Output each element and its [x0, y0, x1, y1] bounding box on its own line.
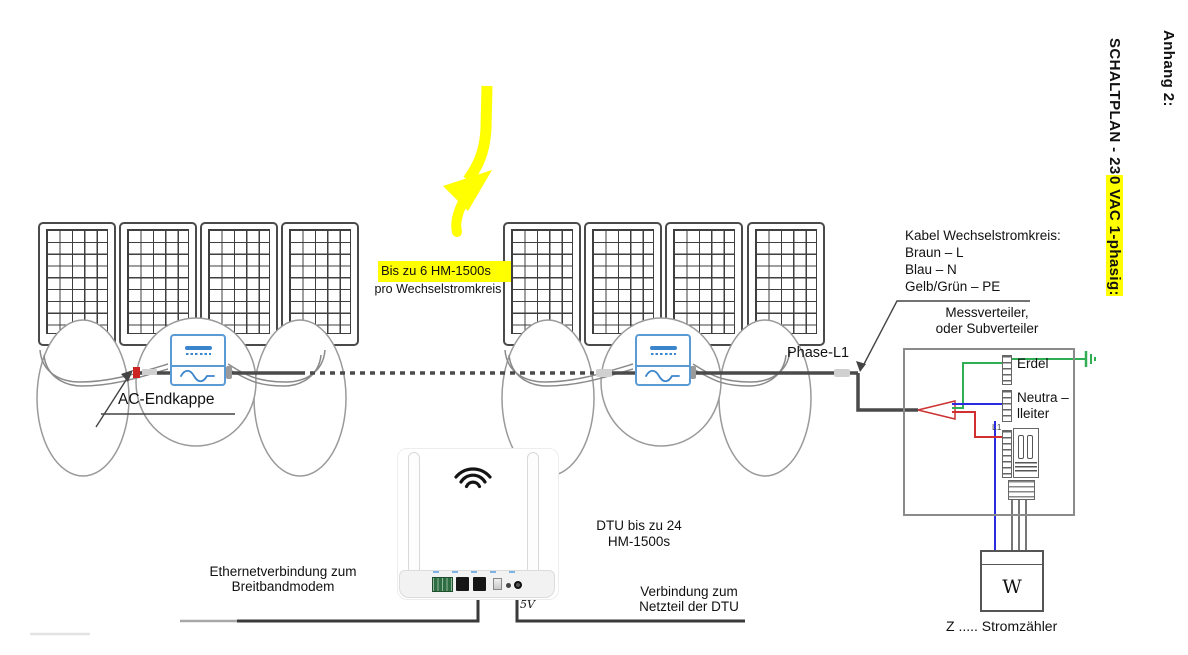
ethernet-port: [456, 577, 469, 591]
reset-button: [506, 583, 511, 588]
distribution-box: [903, 348, 1075, 516]
inverter-port: [226, 366, 232, 379]
terminal-port: [432, 577, 453, 592]
ethernet-line2: Breitbandmodem: [185, 579, 381, 594]
distributor-label: Messverteiler, oder Subverteiler: [912, 305, 1062, 336]
breaker-slot: [1027, 435, 1033, 459]
breaker-terminal-block: [1002, 430, 1012, 478]
distributor-line1: Messverteiler,: [912, 305, 1062, 321]
inverter-bar-icon: [650, 346, 677, 350]
ethernet-line1: Ethernetverbindung zum: [185, 564, 381, 579]
cable-connector: [834, 369, 850, 377]
ac-cable-blue: Blau – N: [905, 261, 1061, 278]
connector-mark: [142, 369, 157, 375]
meter-symbol: W: [982, 565, 1042, 609]
breaker-label: L1: [992, 423, 1001, 432]
earth-terminal-block: [1002, 355, 1012, 385]
inverter-bar-icon: [185, 346, 212, 350]
title-prefix: SCHALTPLAN - 23: [1106, 38, 1123, 175]
ac-cable-legend: Kabel Wechselstromkreis: Braun – L Blau …: [905, 227, 1061, 295]
power-line1: Verbindung zum: [618, 584, 760, 599]
meter-legend: Z ..... Stromzähler: [946, 618, 1057, 634]
circuit-breaker: [1013, 428, 1039, 478]
ac-cable-brown: Braun – L: [905, 244, 1061, 261]
appendix-heading: Anhang 2:: [1160, 30, 1177, 107]
neutral-terminal-block: [1002, 390, 1012, 422]
distributor-line2: oder Subverteiler: [912, 321, 1062, 337]
power-connection-label: Verbindung zum Netzteil der DTU: [618, 584, 760, 614]
power-jack: [514, 581, 522, 589]
breaker-slot: [1018, 435, 1024, 459]
dtu-line2: HM-1500s: [585, 534, 693, 550]
cable-connector: [596, 369, 612, 377]
inverter-dots-icon: [651, 353, 676, 356]
title-highlighted: 0 VAC 1-phasig:: [1106, 175, 1123, 297]
port-label-marks: [433, 571, 525, 573]
meter-connector: [1008, 480, 1035, 500]
neutral-label: Neutra – lleiter: [1017, 390, 1069, 422]
dtu-antenna: [527, 452, 539, 578]
ac-endcap-label: AC-Endkappe: [118, 392, 215, 408]
dtu-label: DTU bis zu 24 HM-1500s: [585, 518, 693, 550]
inverter-dots-icon: [186, 353, 211, 356]
breaker-hatch: [1015, 462, 1037, 474]
usb-port: [493, 578, 502, 590]
power-voltage-label: 5V: [520, 597, 535, 613]
inverter-ac-section: [172, 367, 224, 384]
inverter-ac-section: [637, 367, 689, 384]
meter-header: [982, 552, 1042, 565]
power-line2: Netzteil der DTU: [618, 599, 760, 614]
wifi-icon: [450, 452, 496, 490]
inverter-dc-section: [637, 336, 689, 367]
ethernet-port: [473, 577, 486, 591]
neutral-line1: Neutra –: [1017, 390, 1069, 406]
energy-meter: W: [980, 550, 1044, 612]
schaltplan-diagram: W Bis zu 6 HM-1500s pro Wechselstromkrei…: [0, 0, 1188, 655]
sine-wave-icon: [644, 368, 682, 383]
ac-endcap: [133, 367, 140, 378]
schaltplan-heading: SCHALTPLAN - 230 VAC 1-phasig:: [1106, 38, 1123, 296]
ac-cable-title: Kabel Wechselstromkreis:: [905, 227, 1061, 244]
branch-capacity-label: Bis zu 6 HM-1500s: [381, 263, 491, 279]
dtu-line1: DTU bis zu 24: [585, 518, 693, 534]
branch-capacity-sub-label: pro Wechselstromkreis: [363, 281, 513, 297]
ethernet-cable: [237, 598, 478, 621]
dtu-antenna: [408, 452, 420, 578]
phase-label: Phase-L1: [787, 345, 849, 361]
yellow-arrow-icon: [443, 86, 492, 232]
neutral-line2: lleiter: [1017, 406, 1069, 422]
ac-cable-pe: Gelb/Grün – PE: [905, 278, 1061, 295]
sine-wave-icon: [179, 368, 217, 383]
earth-label: Erdel: [1017, 356, 1049, 372]
inverter-dc-section: [172, 336, 224, 367]
microinverter: [170, 334, 226, 386]
ethernet-label: Ethernetverbindung zum Breitbandmodem: [185, 564, 381, 594]
microinverter: [635, 334, 691, 386]
